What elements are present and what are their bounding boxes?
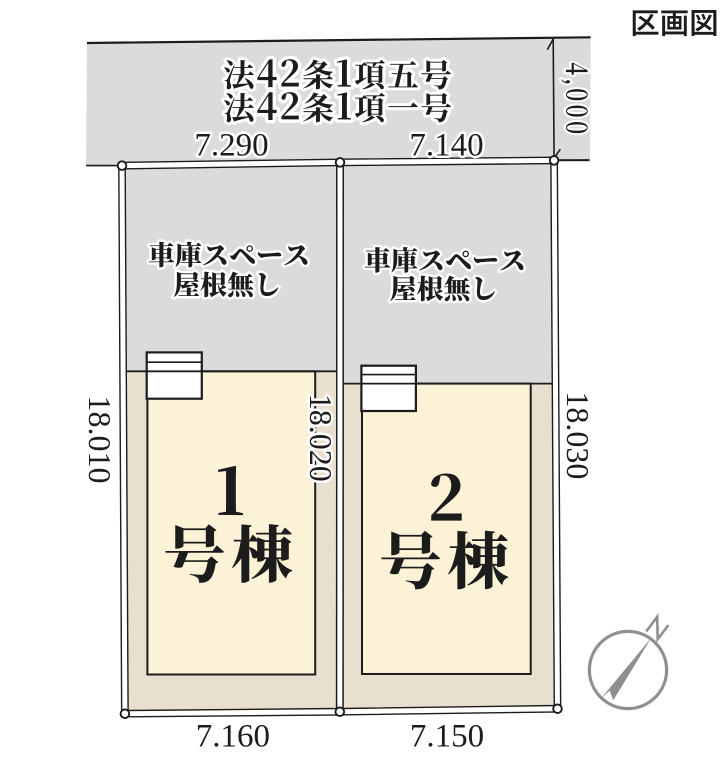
svg-text:7.140: 7.140 bbox=[409, 128, 483, 164]
svg-text:18.010: 18.010 bbox=[82, 396, 118, 484]
svg-text:7.150: 7.150 bbox=[410, 719, 484, 755]
svg-text:7.290: 7.290 bbox=[194, 128, 268, 164]
svg-text:7.160: 7.160 bbox=[196, 719, 270, 755]
svg-text:18.030: 18.030 bbox=[560, 391, 596, 479]
svg-text:18.020: 18.020 bbox=[303, 394, 339, 482]
